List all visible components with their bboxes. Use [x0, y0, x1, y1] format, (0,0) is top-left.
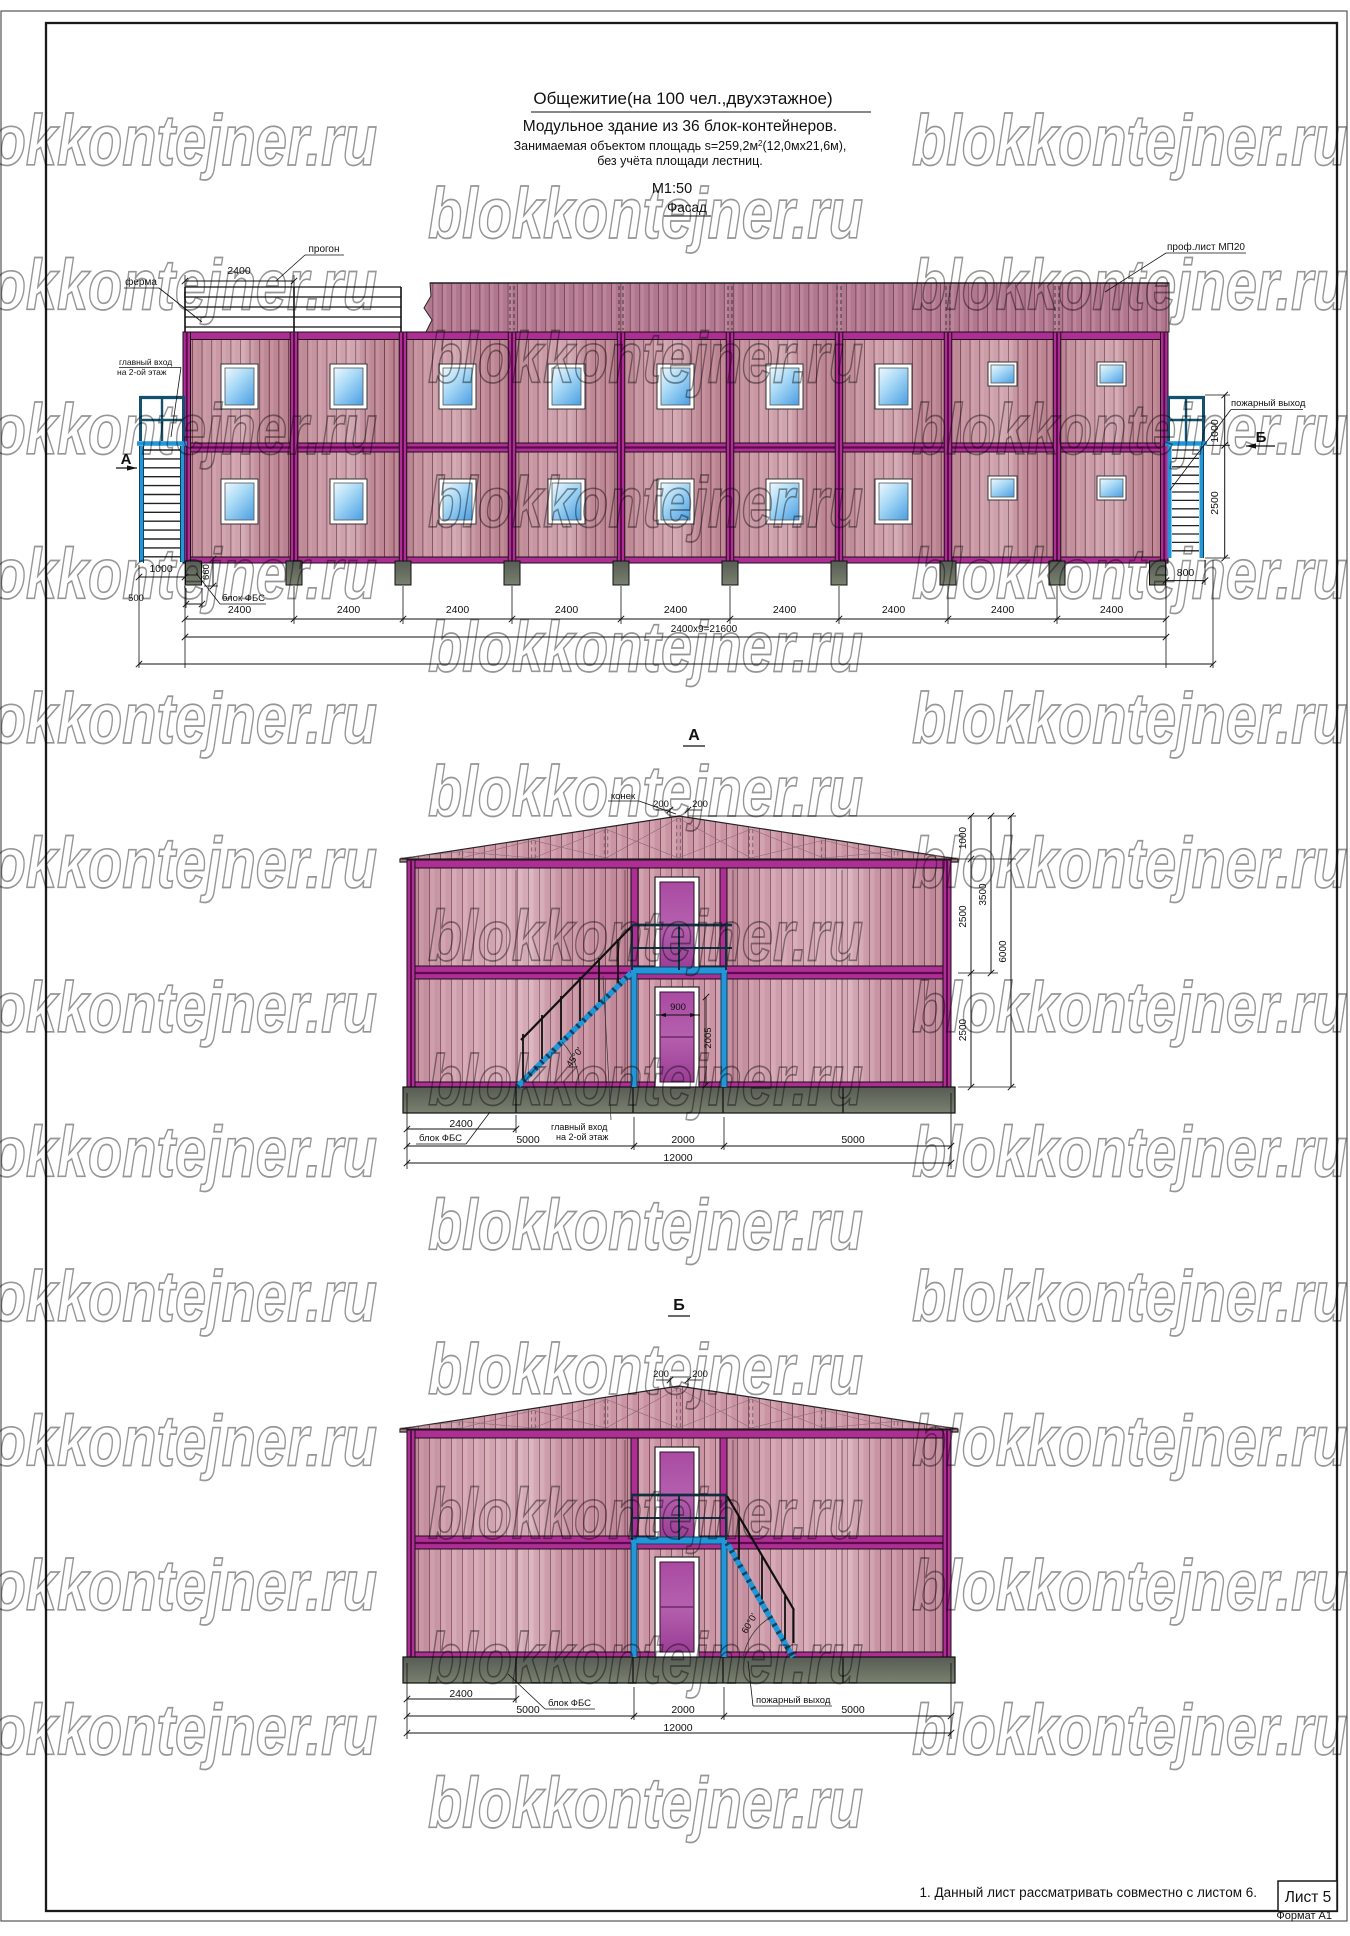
svg-text:blokkontejner.ru: blokkontejner.ru [912, 1114, 1347, 1193]
svg-text:5000: 5000 [841, 1704, 865, 1716]
svg-text:blokkontejner.ru: blokkontejner.ru [912, 102, 1347, 181]
svg-text:blokkontejner.ru: blokkontejner.ru [428, 1476, 863, 1555]
svg-text:blokkontejner.ru: blokkontejner.ru [428, 1331, 863, 1410]
svg-text:blokkontejner.ru: blokkontejner.ru [0, 1258, 377, 1337]
svg-text:на 2-ой этаж: на 2-ой этаж [117, 367, 167, 377]
svg-text:Модульное здание из 36 блок-к: Модульное здание из 36 блок-контейнеров. [523, 118, 838, 135]
svg-text:blokkontejner.ru: blokkontejner.ru [0, 102, 377, 181]
svg-text:blokkontejner.ru: blokkontejner.ru [0, 391, 377, 470]
svg-text:blokkontejner.ru: blokkontejner.ru [912, 536, 1347, 615]
svg-text:900: 900 [670, 1002, 686, 1013]
svg-text:blokkontejner.ru: blokkontejner.ru [0, 247, 377, 326]
svg-text:blokkontejner.ru: blokkontejner.ru [912, 1547, 1347, 1626]
svg-text:2000: 2000 [671, 1704, 695, 1716]
svg-text:blokkontejner.ru: blokkontejner.ru [912, 1258, 1347, 1337]
svg-text:blokkontejner.ru: blokkontejner.ru [428, 1042, 863, 1121]
svg-text:главный вход: главный вход [551, 1122, 608, 1132]
svg-text:2000: 2000 [671, 1134, 695, 1146]
svg-text:blokkontejner.ru: blokkontejner.ru [912, 247, 1347, 326]
svg-text:5000: 5000 [841, 1134, 865, 1146]
svg-text:blokkontejner.ru: blokkontejner.ru [428, 753, 863, 832]
svg-text:главный вход: главный вход [119, 357, 172, 367]
svg-text:Лист 5: Лист 5 [1285, 1889, 1332, 1906]
svg-text:blokkontejner.ru: blokkontejner.ru [0, 825, 377, 904]
svg-text:Формат А1: Формат А1 [1276, 1910, 1332, 1922]
svg-text:blokkontejner.ru: blokkontejner.ru [0, 680, 377, 759]
svg-text:5000: 5000 [516, 1134, 540, 1146]
svg-text:blokkontejner.ru: blokkontejner.ru [912, 1692, 1347, 1771]
svg-text:блок ФБС: блок ФБС [419, 1133, 462, 1144]
svg-text:blokkontejner.ru: blokkontejner.ru [912, 825, 1347, 904]
svg-text:blokkontejner.ru: blokkontejner.ru [428, 1187, 863, 1266]
svg-text:6000: 6000 [998, 940, 1009, 963]
svg-text:Б: Б [673, 1297, 685, 1314]
svg-text:blokkontejner.ru: blokkontejner.ru [0, 536, 377, 615]
svg-text:Общежитие(на 100 чел.,двухэтаж: Общежитие(на 100 чел.,двухэтажное) [533, 89, 832, 108]
svg-text:blokkontejner.ru: blokkontejner.ru [428, 1765, 863, 1844]
svg-text:blokkontejner.ru: blokkontejner.ru [0, 1547, 377, 1626]
svg-text:2400: 2400 [882, 604, 906, 616]
svg-text:blokkontejner.ru: blokkontejner.ru [428, 1620, 863, 1699]
svg-text:12000: 12000 [663, 1152, 692, 1164]
svg-text:2500: 2500 [958, 905, 969, 928]
svg-text:Занимаемая объектом площадь: Занимаемая объектом площадь s=259,2м2(12… [514, 139, 847, 153]
svg-text:blokkontejner.ru: blokkontejner.ru [428, 898, 863, 977]
svg-text:blokkontejner.ru: blokkontejner.ru [428, 464, 863, 543]
svg-text:blokkontejner.ru: blokkontejner.ru [0, 1692, 377, 1771]
svg-text:blokkontejner.ru: blokkontejner.ru [912, 680, 1347, 759]
svg-text:blokkontejner.ru: blokkontejner.ru [428, 320, 863, 399]
svg-text:blokkontejner.ru: blokkontejner.ru [0, 1114, 377, 1193]
svg-text:5000: 5000 [516, 1704, 540, 1716]
svg-text:blokkontejner.ru: blokkontejner.ru [0, 1403, 377, 1482]
svg-text:blokkontejner.ru: blokkontejner.ru [912, 969, 1347, 1048]
svg-text:блок ФБС: блок ФБС [548, 1698, 591, 1709]
svg-text:blokkontejner.ru: blokkontejner.ru [912, 1403, 1347, 1482]
svg-text:blokkontejner.ru: blokkontejner.ru [428, 609, 863, 688]
svg-text:12000: 12000 [663, 1722, 692, 1734]
svg-text:blokkontejner.ru: blokkontejner.ru [0, 969, 377, 1048]
svg-text:1. Данный лист рассматривать с: 1. Данный лист рассматривать совместно с… [920, 1885, 1257, 1900]
svg-text:А: А [688, 727, 700, 744]
svg-text:blokkontejner.ru: blokkontejner.ru [428, 175, 863, 254]
svg-text:2500: 2500 [1209, 491, 1221, 515]
svg-text:на 2-ой этаж: на 2-ой этаж [556, 1132, 608, 1142]
svg-text:blokkontejner.ru: blokkontejner.ru [912, 391, 1347, 470]
svg-text:без учёта площади лестниц.: без учёта площади лестниц. [597, 154, 763, 168]
